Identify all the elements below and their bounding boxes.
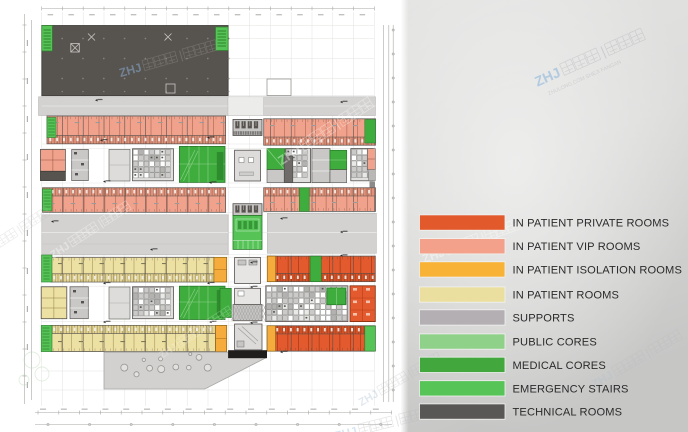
svg-text:SUPPORTS: SUPPORTS (513, 312, 575, 324)
svg-text:TECHNICAL ROOMS: TECHNICAL ROOMS (513, 407, 623, 419)
svg-text:EMERGENCY STAIRS: EMERGENCY STAIRS (513, 383, 629, 395)
svg-text:IN PATIENT ROOMS: IN PATIENT ROOMS (513, 290, 620, 302)
svg-text:IN PATIENT ISOLATION ROOMS: IN PATIENT ISOLATION ROOMS (513, 264, 683, 276)
svg-text:IN PATIENT PRIVATE ROOMS: IN PATIENT PRIVATE ROOMS (513, 218, 670, 230)
svg-text:IN PATIENT VIP ROOMS: IN PATIENT VIP ROOMS (513, 241, 641, 253)
svg-text:PUBLIC CORES: PUBLIC CORES (513, 337, 597, 349)
svg-text:MEDICAL CORES: MEDICAL CORES (513, 360, 606, 372)
